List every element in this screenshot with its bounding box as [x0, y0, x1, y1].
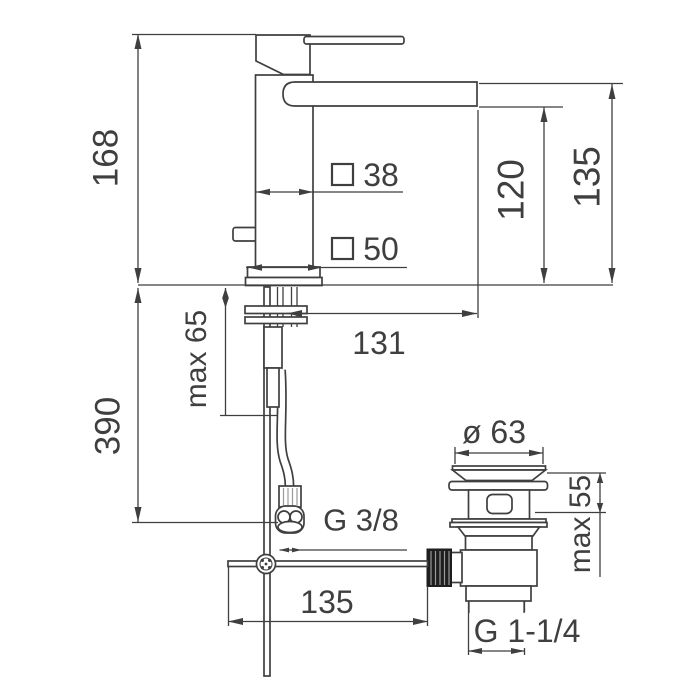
hose-thread-label: G 3/8 — [323, 505, 399, 536]
dim-135-right-label: 135 — [569, 146, 606, 208]
faucet-lever — [304, 37, 404, 45]
supply-tube-upper — [264, 327, 282, 368]
dim-38-label: 38 — [363, 159, 399, 191]
waste-side-boss — [451, 553, 462, 583]
waste-lower-ring — [466, 586, 531, 601]
square-symbol-50 — [332, 238, 353, 259]
square-symbol-38 — [332, 164, 353, 185]
dim-390-label: 390 — [91, 397, 126, 455]
waste-neck — [466, 536, 533, 550]
mounting-nut — [245, 317, 307, 324]
faucet-handle-base — [256, 35, 310, 75]
supply-tube-lower — [267, 368, 279, 407]
waste-thread-label: G 1-1/4 — [474, 615, 581, 647]
dim-131-label: 131 — [352, 327, 405, 359]
temperature-stud — [233, 228, 257, 242]
waste-washer-plate — [449, 482, 548, 491]
faucet-spout — [283, 82, 477, 106]
drawing-canvas: 168 390 max 65 120 135 38 50 131 G 3/8 1… — [0, 0, 700, 700]
dim-135-bottom-label: 135 — [300, 586, 353, 618]
pop-up-linkage — [228, 555, 428, 574]
under-deck-assembly — [245, 287, 307, 676]
pop-up-waste — [427, 466, 548, 613]
dim-max55-label: max 55 — [566, 475, 596, 573]
faucet-base-flange — [246, 278, 323, 286]
dim-max65-label: max 65 — [182, 310, 212, 408]
waste-diameter-label: ø 63 — [462, 416, 526, 448]
faucet-outline — [233, 35, 477, 286]
dim-168-label: 168 — [89, 129, 124, 187]
waste-main-body — [461, 550, 538, 586]
dim-120-label: 120 — [493, 159, 530, 221]
dim-50-label: 50 — [363, 233, 399, 265]
hose-connector — [276, 486, 305, 533]
